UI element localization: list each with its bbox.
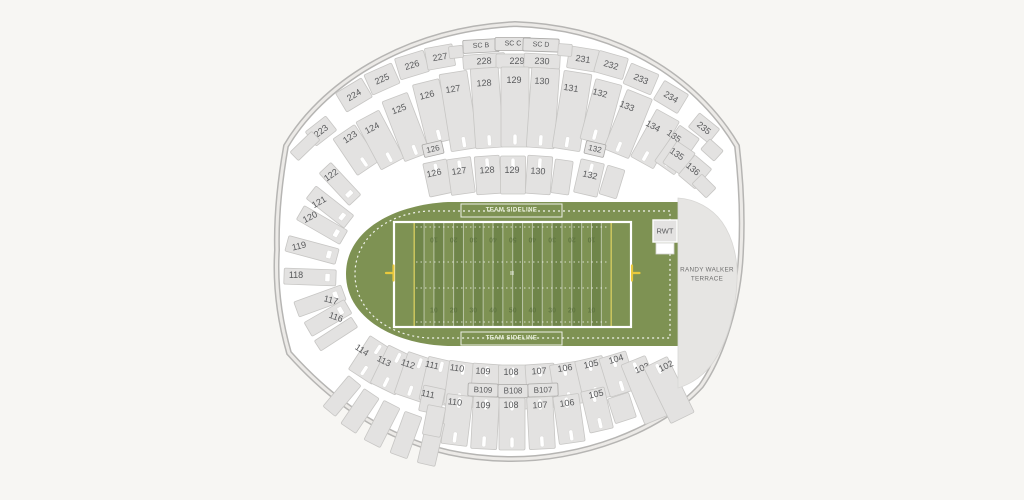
section-block: [448, 45, 463, 58]
yard-number-bottom: 20: [450, 308, 458, 315]
team-sideline-top-label: TEAM SIDELINE: [486, 208, 538, 214]
section-b108[interactable]: B108: [498, 385, 528, 398]
section-label: SC B: [473, 42, 490, 50]
section-label: 128: [479, 164, 495, 175]
section-107[interactable]: 107: [527, 396, 556, 449]
yard-number-top: 30: [548, 236, 556, 243]
aisle-stair-mark: [325, 274, 330, 282]
section-label: 107: [532, 400, 548, 411]
yard-number-bottom: 30: [548, 308, 556, 315]
yard-number-top: 50: [509, 236, 517, 243]
football-field: 101020203030404050504040303020201010 TEA…: [346, 202, 678, 346]
midfield-mark: [510, 271, 514, 275]
section-label: SC C: [505, 41, 522, 48]
section-b109[interactable]: B109: [468, 383, 498, 397]
stadium-seating-chart: 223224225226227228229230231232233234235S…: [0, 0, 1024, 500]
section-label: 108: [503, 400, 518, 410]
aisle-stair-mark: [510, 437, 514, 448]
section-label: SC D: [533, 41, 550, 49]
section-129[interactable]: 129: [501, 156, 526, 194]
section-108[interactable]: 108: [499, 398, 525, 450]
section-label: 130: [530, 165, 546, 176]
section-label: 108: [503, 367, 518, 377]
section-sc-d[interactable]: SC D: [523, 38, 559, 52]
terrace-label-line1: RANDY WALKER: [680, 267, 734, 274]
yard-number-top: 40: [489, 236, 497, 243]
aisle-stair-mark: [482, 436, 487, 447]
section-label: B109: [474, 385, 494, 395]
section-label: 229: [509, 56, 524, 66]
section-130[interactable]: 130: [525, 155, 553, 195]
section-label: 130: [534, 75, 550, 86]
section-label: 109: [475, 365, 491, 376]
section-129[interactable]: 129: [501, 67, 529, 147]
terrace-label-line2: TERRACE: [691, 276, 723, 283]
yard-number-bottom: 20: [568, 308, 576, 315]
yard-number-bottom: 40: [489, 308, 497, 315]
section-label: 106: [559, 397, 575, 409]
section-block: [558, 44, 573, 57]
yard-number-top: 10: [430, 236, 438, 243]
section-109[interactable]: 109: [471, 396, 500, 449]
yard-number-top: 30: [469, 236, 477, 243]
aisle-stair-mark: [540, 436, 545, 447]
section-128[interactable]: 128: [470, 67, 504, 149]
section-label: 228: [476, 55, 492, 66]
yard-number-bottom: 40: [529, 308, 537, 315]
section-label: B107: [534, 385, 554, 395]
rwt-subbox: [656, 243, 674, 254]
yard-number-bottom: 10: [588, 308, 596, 315]
field-stripe: [414, 223, 424, 327]
aisle-stair-mark: [487, 135, 492, 146]
yard-number-bottom: 50: [509, 308, 517, 315]
section-label: 110: [447, 396, 462, 408]
aisle-stair-mark: [513, 134, 517, 145]
yard-number-top: 40: [528, 236, 536, 243]
section-label: 118: [289, 270, 303, 280]
section-label: 127: [451, 165, 467, 177]
section-label: 110: [449, 362, 465, 374]
yard-number-bottom: 10: [430, 308, 438, 315]
section-label: 109: [475, 400, 491, 411]
section-128[interactable]: 128: [474, 155, 502, 195]
section-b107[interactable]: B107: [528, 383, 558, 397]
section-118[interactable]: 118: [284, 268, 337, 286]
rwt-label: RWT: [657, 227, 674, 236]
yard-number-top: 20: [450, 236, 458, 243]
yard-number-top: 20: [568, 236, 576, 243]
section-label: B108: [504, 387, 523, 396]
section-rwt[interactable]: RWT: [653, 220, 677, 254]
yard-number-top: 10: [588, 236, 596, 243]
section-127[interactable]: 127: [447, 157, 476, 196]
section-label: 230: [534, 56, 550, 67]
yard-number-bottom: 30: [469, 308, 477, 315]
section-block-shape: [448, 45, 463, 58]
section-label: 129: [506, 75, 521, 85]
section-block-shape: [558, 44, 573, 57]
section-sc-b[interactable]: SC B: [463, 39, 500, 54]
section-label: 129: [504, 165, 519, 175]
section-110[interactable]: 110: [441, 394, 473, 447]
team-sideline-bottom-label: TEAM SIDELINE: [486, 336, 538, 342]
section-label: 107: [531, 365, 547, 376]
section-230[interactable]: 230: [524, 53, 561, 69]
field-stripe: [601, 223, 611, 327]
aisle-stair-mark: [538, 135, 543, 146]
section-label: 128: [476, 77, 492, 88]
